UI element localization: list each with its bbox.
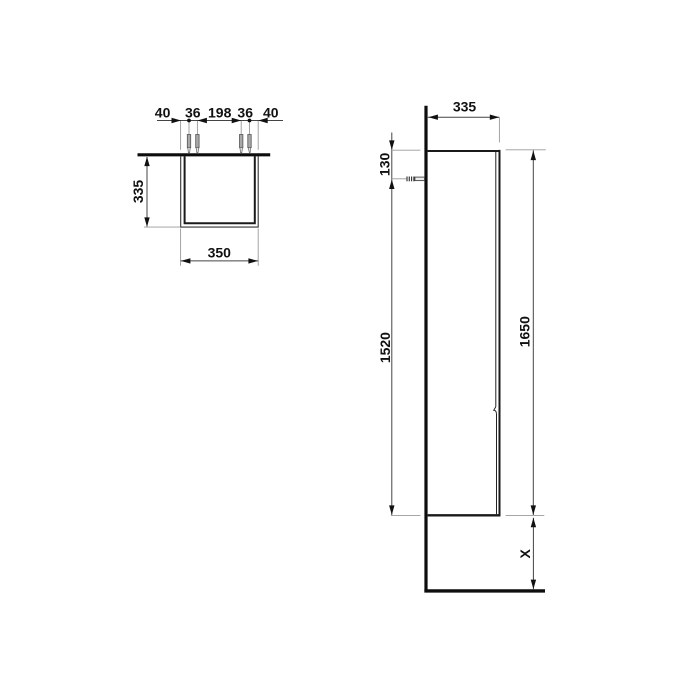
svg-text:198: 198 bbox=[208, 105, 232, 121]
svg-text:350: 350 bbox=[208, 244, 232, 260]
svg-text:36: 36 bbox=[185, 105, 201, 121]
svg-text:40: 40 bbox=[263, 105, 279, 121]
svg-text:X: X bbox=[517, 548, 533, 558]
svg-text:335: 335 bbox=[130, 180, 146, 204]
svg-text:40: 40 bbox=[155, 105, 171, 121]
svg-text:1650: 1650 bbox=[517, 316, 533, 347]
svg-text:36: 36 bbox=[237, 105, 253, 121]
svg-text:130: 130 bbox=[377, 153, 393, 177]
svg-text:335: 335 bbox=[453, 99, 477, 115]
svg-text:1520: 1520 bbox=[377, 332, 393, 363]
